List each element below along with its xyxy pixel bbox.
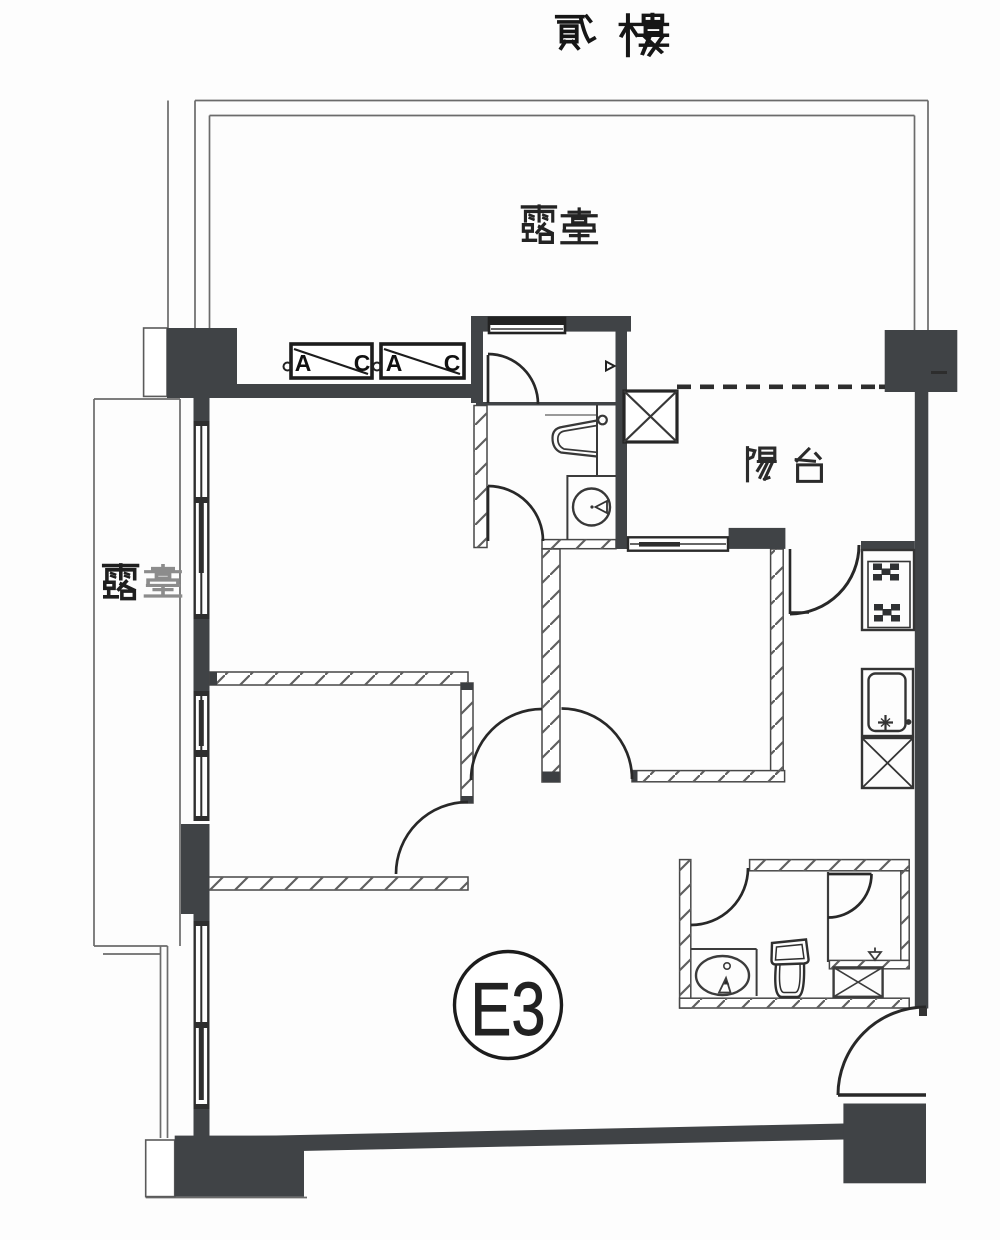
- svg-text:C: C: [354, 350, 371, 376]
- svg-text:A: A: [295, 350, 312, 376]
- svg-text:E3: E3: [470, 967, 545, 1051]
- svg-text:A: A: [386, 350, 403, 376]
- svg-text:C: C: [444, 350, 461, 376]
